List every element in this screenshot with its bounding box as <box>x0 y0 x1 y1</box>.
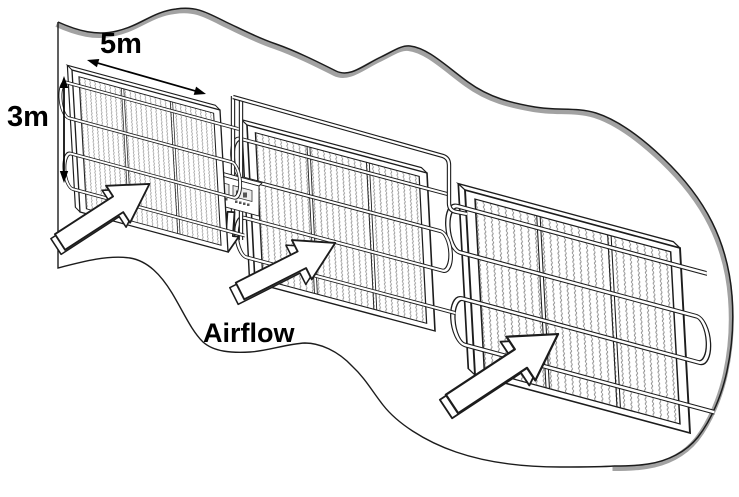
mesh-panel-3 <box>445 180 715 440</box>
panel-height-label: 3m <box>7 101 49 133</box>
airflow-label: Airflow <box>203 318 295 348</box>
panel-width-label: 5m <box>100 28 142 60</box>
diagram-canvas: 5m 3m Airflow <box>0 0 739 497</box>
illustration-svg: 5m 3m Airflow <box>0 0 739 497</box>
